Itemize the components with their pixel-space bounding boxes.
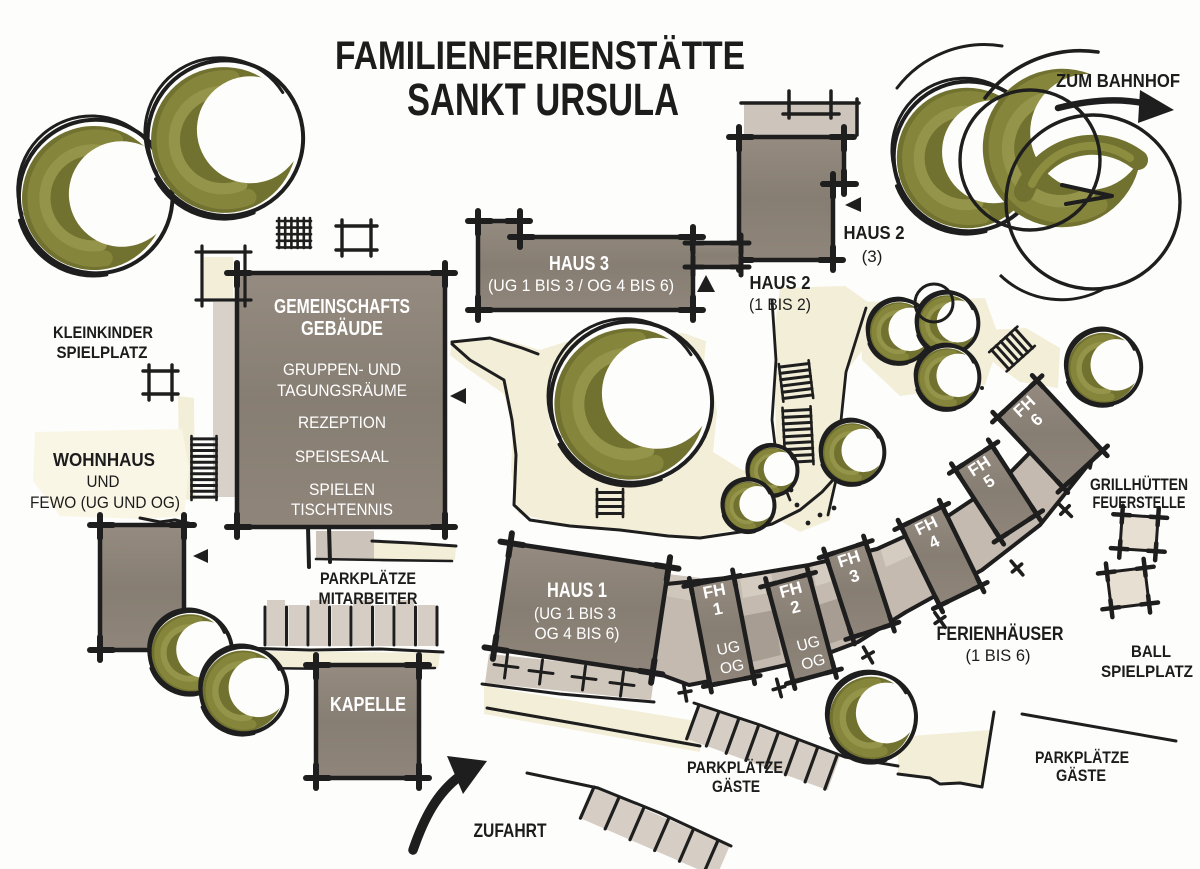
svg-text:SPIELPLATZ: SPIELPLATZ <box>1101 662 1193 681</box>
svg-text:FERIENHÄUSER: FERIENHÄUSER <box>937 624 1064 645</box>
svg-text:ZUFAHRT: ZUFAHRT <box>474 821 547 842</box>
svg-text:(1 BIS 2): (1 BIS 2) <box>749 295 811 314</box>
svg-text:(UG 1 BIS 3 / OG 4 BIS 6): (UG 1 BIS 3 / OG 4 BIS 6) <box>488 277 674 295</box>
svg-text:GEMEINSCHAFTS: GEMEINSCHAFTS <box>274 296 410 318</box>
svg-text:MITARBEITER: MITARBEITER <box>319 589 418 608</box>
svg-text:BALL: BALL <box>1131 642 1171 661</box>
svg-text:GEBÄUDE: GEBÄUDE <box>301 317 383 340</box>
svg-text:(1 BIS 6): (1 BIS 6) <box>966 646 1031 665</box>
svg-text:FEWO (UG UND OG): FEWO (UG UND OG) <box>30 494 180 512</box>
svg-text:FEUERSTELLE: FEUERSTELLE <box>1093 493 1186 512</box>
svg-text:OG 4 BIS 6): OG 4 BIS 6) <box>535 624 620 643</box>
svg-text:GRUPPEN- UND: GRUPPEN- UND <box>283 361 401 379</box>
svg-text:(3): (3) <box>862 247 883 266</box>
svg-text:GÄSTE: GÄSTE <box>1056 766 1106 785</box>
svg-text:TAGUNGSRÄUME: TAGUNGSRÄUME <box>277 382 407 400</box>
svg-text:KAPELLE: KAPELLE <box>330 694 406 716</box>
svg-text:WOHNHAUS: WOHNHAUS <box>53 450 155 470</box>
svg-text:HAUS 3: HAUS 3 <box>549 253 609 275</box>
svg-text:HAUS 1: HAUS 1 <box>547 579 607 602</box>
svg-text:HAUS 2: HAUS 2 <box>844 223 905 243</box>
svg-text:TISCHTENNIS: TISCHTENNIS <box>291 501 393 519</box>
svg-text:GRILLHÜTTEN: GRILLHÜTTEN <box>1090 475 1188 494</box>
svg-text:HAUS 2: HAUS 2 <box>750 273 811 293</box>
svg-text:SPIELEN: SPIELEN <box>309 481 375 499</box>
svg-text:PARKPLÄTZE: PARKPLÄTZE <box>1035 748 1129 767</box>
svg-text:ZUM BAHNHOF: ZUM BAHNHOF <box>1056 71 1180 91</box>
svg-text:REZEPTION: REZEPTION <box>298 414 386 432</box>
svg-text:PARKPLÄTZE: PARKPLÄTZE <box>687 758 783 777</box>
svg-text:GÄSTE: GÄSTE <box>712 777 760 796</box>
svg-text:FAMILIENFERIENSTÄTTE: FAMILIENFERIENSTÄTTE <box>335 34 745 78</box>
svg-text:UND: UND <box>87 473 120 491</box>
svg-text:SANKT URSULA: SANKT URSULA <box>407 74 679 125</box>
svg-text:(UG 1 BIS 3: (UG 1 BIS 3 <box>534 604 616 623</box>
svg-text:SPEISESAAL: SPEISESAAL <box>295 448 389 466</box>
svg-text:SPIELPLATZ: SPIELPLATZ <box>57 343 148 362</box>
svg-text:KLEINKINDER: KLEINKINDER <box>53 323 153 342</box>
svg-text:PARKPLÄTZE: PARKPLÄTZE <box>320 569 416 588</box>
